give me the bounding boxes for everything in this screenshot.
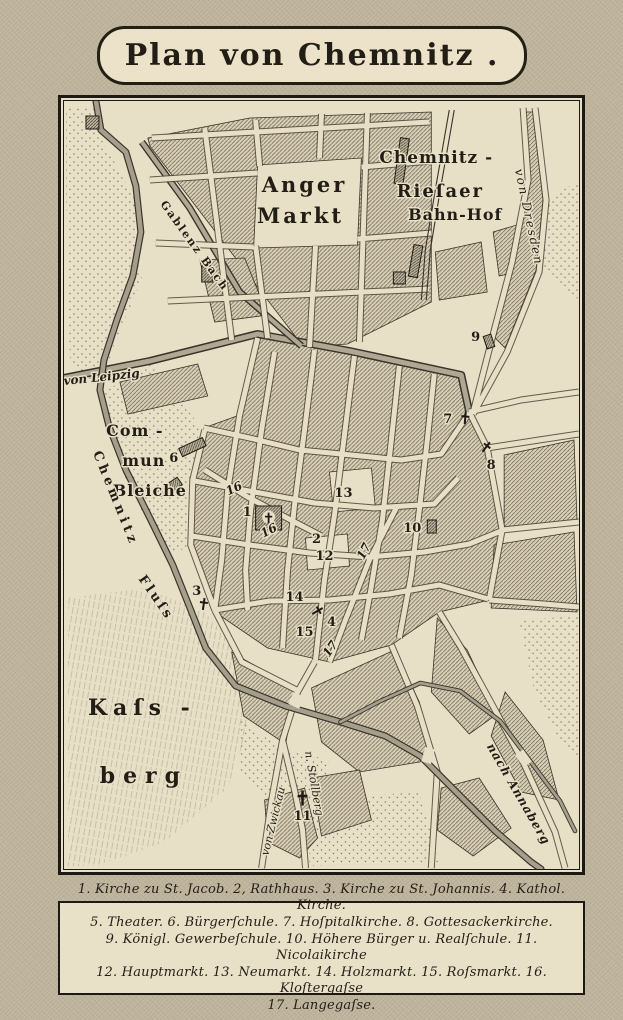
page-title: Plan von Chemnitz . bbox=[125, 38, 500, 73]
marker-10: 10 bbox=[403, 521, 421, 536]
label-markt: Markt bbox=[257, 203, 344, 228]
city-map: 1 2 3 4 5 6 7 8 9 10 11 12 13 14 15 16 1… bbox=[64, 101, 579, 869]
marker-15: 15 bbox=[296, 625, 314, 640]
marker-3: 3 bbox=[192, 584, 201, 599]
label-anger: Anger bbox=[261, 172, 347, 197]
label-commun-2: mun bbox=[122, 451, 165, 470]
label-bahnhof-3: Bahn-Hof bbox=[408, 205, 502, 224]
map-frame: 1 2 3 4 5 6 7 8 9 10 11 12 13 14 15 16 1… bbox=[58, 95, 585, 875]
legend-line-2: 5. Theater. 6. Bürgerſchule. 7. Hoſpital… bbox=[60, 915, 583, 931]
map-canvas: 1 2 3 4 5 6 7 8 9 10 11 12 13 14 15 16 1… bbox=[63, 100, 580, 870]
legend-line-5: 17. Langegaſse. bbox=[60, 998, 583, 1014]
legend-line-4: 12. Hauptmarkt. 13. Neumarkt. 14. Holzma… bbox=[60, 965, 583, 997]
marker-6: 6 bbox=[169, 451, 178, 466]
label-bahnhof-1: Chemnitz - bbox=[379, 148, 493, 168]
marker-2: 2 bbox=[312, 532, 321, 547]
label-bahnhof-2: Rieſaer bbox=[397, 181, 484, 202]
legend-line-3: 9. Königl. Gewerbeſchule. 10. Höhere Bür… bbox=[60, 932, 583, 964]
marker-1: 1 bbox=[243, 505, 252, 520]
label-commun-1: Com - bbox=[106, 421, 163, 440]
label-kassberg-1: Kaſs - bbox=[88, 695, 196, 721]
marker-13: 13 bbox=[334, 486, 352, 501]
building bbox=[86, 116, 99, 129]
map-legend: 1. Kirche zu St. Jacob. 2, Rathhaus. 3. … bbox=[58, 901, 585, 995]
marker-8: 8 bbox=[487, 458, 496, 473]
label-kassberg-2: berg bbox=[100, 763, 188, 789]
marker-12: 12 bbox=[315, 549, 333, 564]
marker-7: 7 bbox=[443, 412, 452, 427]
station-building bbox=[393, 272, 405, 284]
marker-11: 11 bbox=[294, 809, 312, 824]
marker-4: 4 bbox=[327, 615, 336, 630]
map-title-cartouche: Plan von Chemnitz . bbox=[97, 26, 527, 85]
realschule-building bbox=[427, 520, 436, 533]
marker-14: 14 bbox=[286, 590, 304, 605]
label-commun-3: Bleiche bbox=[113, 481, 187, 500]
legend-line-1: 1. Kirche zu St. Jacob. 2, Rathhaus. 3. … bbox=[60, 882, 583, 914]
marker-9: 9 bbox=[471, 330, 480, 345]
